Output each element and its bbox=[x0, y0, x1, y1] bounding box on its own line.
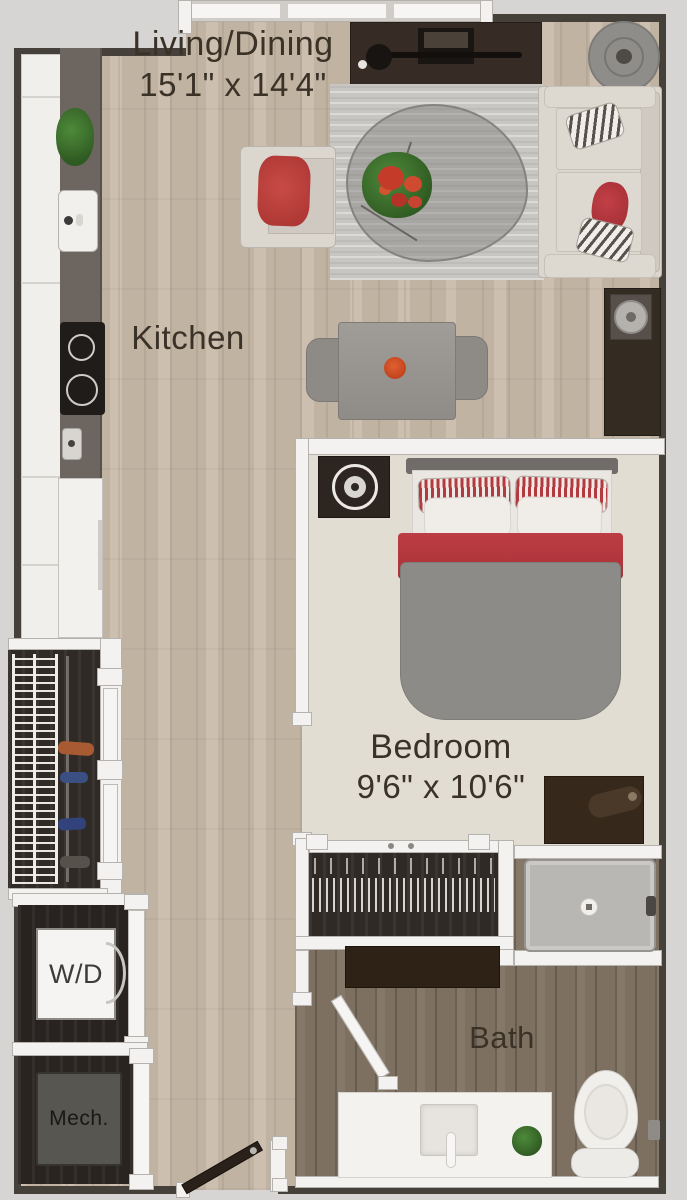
bedroom-label: Bedroom bbox=[321, 730, 561, 766]
door-jamb bbox=[292, 712, 312, 726]
cabinet-divider bbox=[21, 476, 63, 478]
closet-hangers bbox=[312, 878, 495, 912]
outside-bottom bbox=[0, 1194, 687, 1200]
laundry-wall-bottom bbox=[12, 1042, 148, 1056]
door-jamb bbox=[97, 668, 123, 686]
living-room-label: Living/Dining bbox=[103, 27, 363, 63]
mech-door bbox=[133, 1062, 150, 1182]
toilet-paper-holder bbox=[648, 1120, 660, 1140]
bath-label: Bath bbox=[442, 1022, 562, 1055]
dining-chair bbox=[306, 338, 342, 402]
closet-rod bbox=[66, 656, 69, 882]
outside-right bbox=[666, 0, 687, 1200]
bed-duvet bbox=[400, 562, 621, 720]
door-jamb bbox=[97, 862, 123, 880]
hall-closet-door bbox=[103, 784, 118, 864]
cabinet-divider bbox=[21, 282, 63, 284]
bedroom-dims: 9'6" x 10'6" bbox=[321, 770, 561, 805]
door-jamb bbox=[272, 1178, 288, 1192]
window-pane bbox=[288, 4, 386, 18]
wall-top-right bbox=[490, 14, 666, 22]
hall-closet-door bbox=[103, 688, 118, 762]
stove-burner bbox=[66, 374, 98, 406]
window-pane bbox=[394, 4, 486, 18]
floor-plan: W/D Mech. Living/Dining 15'1" x 14'4" Ki… bbox=[0, 0, 687, 1200]
cabinet-divider bbox=[21, 564, 63, 566]
bedroom-wall-left bbox=[295, 438, 309, 726]
stove-burner bbox=[68, 334, 95, 361]
mechanical-unit: Mech. bbox=[36, 1072, 122, 1166]
speaker bbox=[366, 44, 392, 70]
side-table-cup bbox=[616, 49, 632, 64]
door-jamb bbox=[272, 1136, 288, 1150]
plant-bath bbox=[512, 1126, 542, 1156]
shower-drain-grate bbox=[586, 904, 592, 910]
closet-door-knob bbox=[408, 843, 414, 849]
sink-faucet bbox=[64, 216, 73, 225]
toilet-seat bbox=[584, 1084, 628, 1140]
fixture-knob bbox=[68, 440, 75, 447]
closet-hanger-hooks bbox=[314, 858, 494, 874]
refrigerator bbox=[58, 478, 103, 638]
door-jamb bbox=[97, 760, 123, 780]
wall-bottom-left bbox=[14, 1186, 182, 1194]
door-jamb bbox=[124, 894, 149, 910]
hanger-rail bbox=[55, 654, 58, 884]
nightstand-lamp-center bbox=[351, 483, 359, 491]
door-jamb bbox=[378, 1076, 398, 1090]
shower-wall-top bbox=[514, 845, 662, 859]
closet-jamb bbox=[306, 834, 328, 850]
closet-door-knob bbox=[388, 843, 394, 849]
washer-dryer-unit: W/D bbox=[36, 928, 116, 1020]
clothing-item bbox=[60, 772, 88, 783]
clothing-item bbox=[60, 856, 90, 868]
cabinet-divider bbox=[21, 96, 63, 98]
window-pane bbox=[186, 4, 280, 18]
flowers-red bbox=[378, 166, 404, 190]
closet-jamb bbox=[468, 834, 490, 850]
clothing-item bbox=[58, 817, 87, 830]
laundry-door bbox=[128, 910, 145, 1038]
refrigerator-handle bbox=[98, 520, 102, 590]
hall-closet-wall-top bbox=[8, 638, 108, 650]
bath-wall-west bbox=[295, 950, 309, 998]
table-centerpiece bbox=[384, 357, 406, 379]
hanger-rail bbox=[12, 654, 15, 884]
door-jamb bbox=[129, 1048, 154, 1064]
shower-wall-bottom bbox=[514, 950, 662, 966]
sofa-armrest bbox=[544, 254, 656, 278]
door-jamb bbox=[129, 1174, 154, 1190]
bedroom-wall-left-lower bbox=[295, 838, 309, 952]
toilet-tank bbox=[571, 1148, 639, 1178]
door-jamb bbox=[292, 992, 312, 1006]
dining-chair bbox=[452, 336, 488, 400]
clothing-item bbox=[58, 741, 95, 756]
kitchen-label: Kitchen bbox=[108, 321, 268, 356]
soundbar bbox=[388, 52, 522, 58]
armchair-pillow-red bbox=[257, 155, 311, 227]
laundry-label: W/D bbox=[49, 960, 103, 988]
outside-left bbox=[0, 0, 14, 1200]
tv-screen bbox=[424, 32, 468, 48]
shower-fixture bbox=[646, 896, 656, 916]
sofa-backrest bbox=[640, 92, 660, 272]
dresser-object-cap bbox=[628, 792, 637, 801]
sink-faucet bbox=[446, 1132, 456, 1168]
plant-kitchen bbox=[56, 108, 94, 166]
living-room-dims: 15'1" x 14'4" bbox=[103, 68, 363, 103]
sink-handle bbox=[76, 214, 83, 226]
bedroom-wall-top bbox=[295, 438, 665, 455]
console-lamp-center bbox=[626, 312, 636, 322]
vanity-ledge bbox=[345, 946, 500, 988]
mech-label: Mech. bbox=[49, 1108, 109, 1130]
hanger-rail bbox=[33, 654, 36, 884]
